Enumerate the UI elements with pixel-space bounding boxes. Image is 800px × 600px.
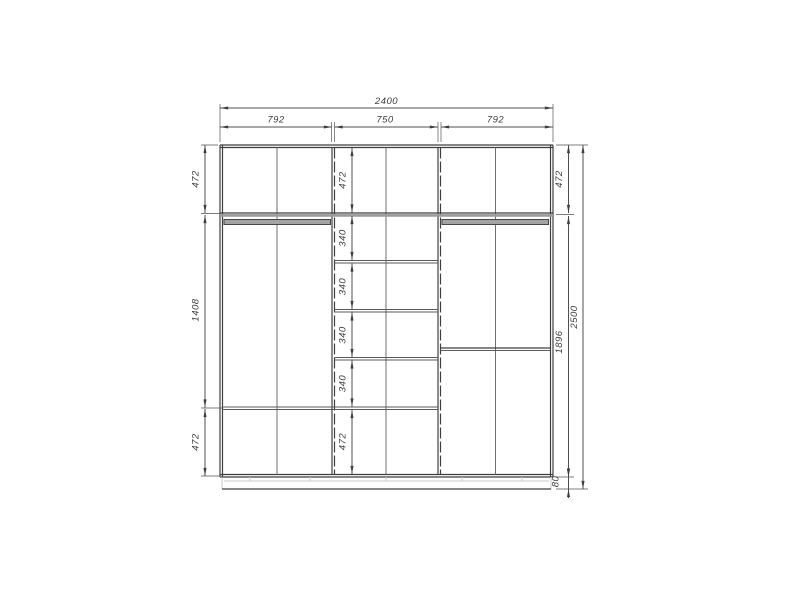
right-dimension-chain: 472 1896 80 2500 [551, 145, 584, 498]
hanging-rod-right [442, 220, 549, 225]
dim-label-overall-height: 2500 [569, 305, 580, 329]
drawing-canvas: 2400 792 750 792 472 1408 472 472 340 34… [0, 0, 800, 600]
cabinet-structure [220, 145, 553, 477]
left-dimension-chain: 472 1408 472 [191, 145, 206, 476]
dim-label-left-bottom: 472 [191, 433, 202, 451]
dim-label-mid-3: 340 [338, 278, 349, 296]
top-dimensions: 2400 792 750 792 [220, 96, 553, 127]
dim-label-right-middle: 1896 [554, 330, 565, 353]
plinth-base [222, 477, 551, 489]
dim-label-left-top: 472 [191, 170, 202, 188]
dim-label-overall-width: 2400 [374, 96, 398, 107]
wardrobe-dimension-drawing: 2400 792 750 792 472 1408 472 472 340 34… [0, 0, 800, 600]
dim-label-mid-4: 340 [338, 326, 349, 344]
dim-label-plinth: 80 [551, 476, 562, 488]
dim-label-right-top: 472 [554, 170, 565, 188]
dim-label-section-right: 792 [487, 115, 505, 126]
middle-dimension-chain: 472 340 340 340 340 472 [338, 148, 353, 474]
dim-label-mid-2: 340 [338, 229, 349, 247]
dim-label-mid-1: 472 [338, 171, 349, 189]
dim-label-section-left: 792 [267, 115, 285, 126]
hanging-rod-left [224, 220, 331, 225]
dim-label-mid-6: 472 [338, 433, 349, 451]
dim-label-section-middle: 750 [376, 115, 394, 126]
dim-label-mid-5: 340 [338, 375, 349, 393]
dim-label-left-middle: 1408 [191, 298, 202, 321]
extension-lines [201, 104, 588, 489]
